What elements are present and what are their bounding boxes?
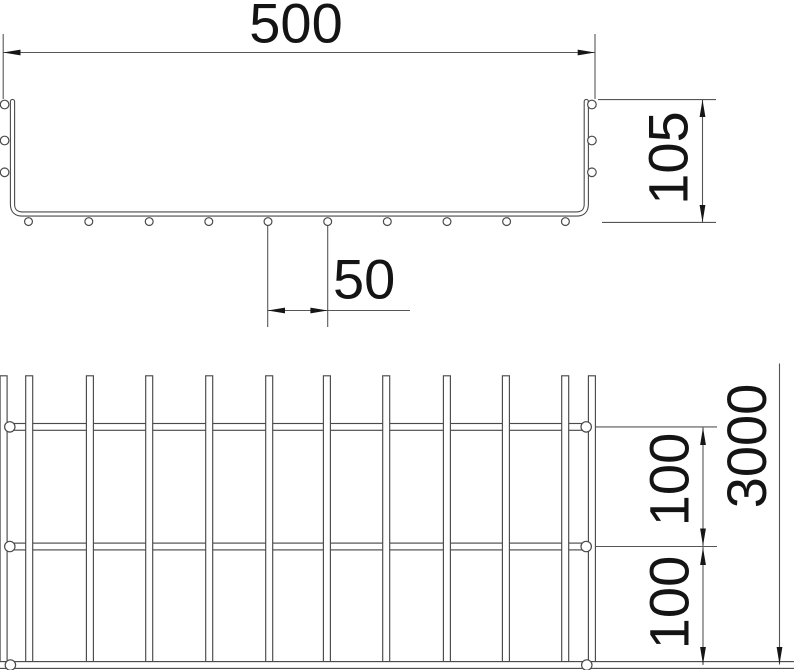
mesh-wire <box>502 376 509 662</box>
dim-spacing-label: 50 <box>333 248 395 311</box>
weld-circle <box>5 422 15 432</box>
wire-circle <box>383 218 391 226</box>
mesh-wire <box>562 376 569 662</box>
cross-section-view: 500 <box>0 0 716 327</box>
weld-circle <box>582 660 592 670</box>
wire-circle <box>443 218 451 226</box>
arrowhead-down <box>700 205 706 222</box>
longitudinal-wires <box>0 376 595 662</box>
dim-pitch-lower-label: 100 <box>638 556 701 649</box>
tray-profile <box>13 102 587 215</box>
wire-circle <box>588 136 597 145</box>
dimension-width: 500 <box>3 0 595 99</box>
plan-view: 100 100 3000 <box>0 364 794 670</box>
weld-circle <box>5 660 15 670</box>
wire-circle <box>588 168 597 177</box>
side-wire-sections <box>0 100 596 176</box>
wire-circle <box>0 168 9 177</box>
dim-pitch-upper-label: 100 <box>638 433 701 526</box>
weld-circle <box>5 541 15 551</box>
wire-circle <box>324 218 332 226</box>
wire-circle <box>503 218 511 226</box>
dimension-length: 3000 <box>715 364 782 665</box>
mesh-wire <box>443 376 450 662</box>
mesh-wire <box>86 376 93 662</box>
dimension-wire-spacing: 50 <box>268 226 410 327</box>
arrowhead-up <box>700 428 706 445</box>
mesh-wire <box>0 376 7 662</box>
tray-profile-outline <box>13 102 587 215</box>
cross-rung-bottom <box>0 662 794 669</box>
mesh-wire <box>383 376 390 662</box>
wire-circle <box>25 218 33 226</box>
arrowhead-right <box>578 50 595 56</box>
dimension-pitch-upper: 100 <box>638 427 706 547</box>
wire-circle <box>145 218 153 226</box>
technical-drawing: 500 <box>0 0 794 670</box>
arrowhead-left <box>3 50 20 56</box>
mesh-wire <box>266 376 273 662</box>
arrowhead-down <box>700 529 706 546</box>
wire-circle <box>0 136 9 145</box>
arrowhead-left <box>268 308 285 314</box>
mesh-wire <box>206 376 213 662</box>
tray-profile-fill <box>13 102 587 215</box>
wire-circle <box>205 218 213 226</box>
wire-circle <box>264 218 272 226</box>
dim-height-label: 105 <box>637 111 700 204</box>
wire-circle <box>0 100 9 109</box>
arrowhead-up <box>700 100 706 117</box>
dim-length-label: 3000 <box>715 384 778 509</box>
bottom-wire-sections <box>25 218 570 226</box>
wire-circle <box>85 218 93 226</box>
wire-circle <box>562 218 570 226</box>
drawing-canvas: 500 <box>0 0 794 670</box>
mesh-wire <box>588 376 595 662</box>
weld-circle <box>581 422 591 432</box>
weld-circle <box>581 541 591 551</box>
wire-circle <box>588 100 597 109</box>
arrowhead-right <box>310 308 327 314</box>
dimension-height: 105 <box>598 100 716 223</box>
arrowhead-up <box>700 548 706 565</box>
mesh-wire <box>323 376 330 662</box>
dimension-pitch-lower: 100 <box>638 547 706 665</box>
dim-width-label: 500 <box>249 0 342 55</box>
mesh-wire <box>146 376 153 662</box>
mesh-wire <box>26 376 33 662</box>
